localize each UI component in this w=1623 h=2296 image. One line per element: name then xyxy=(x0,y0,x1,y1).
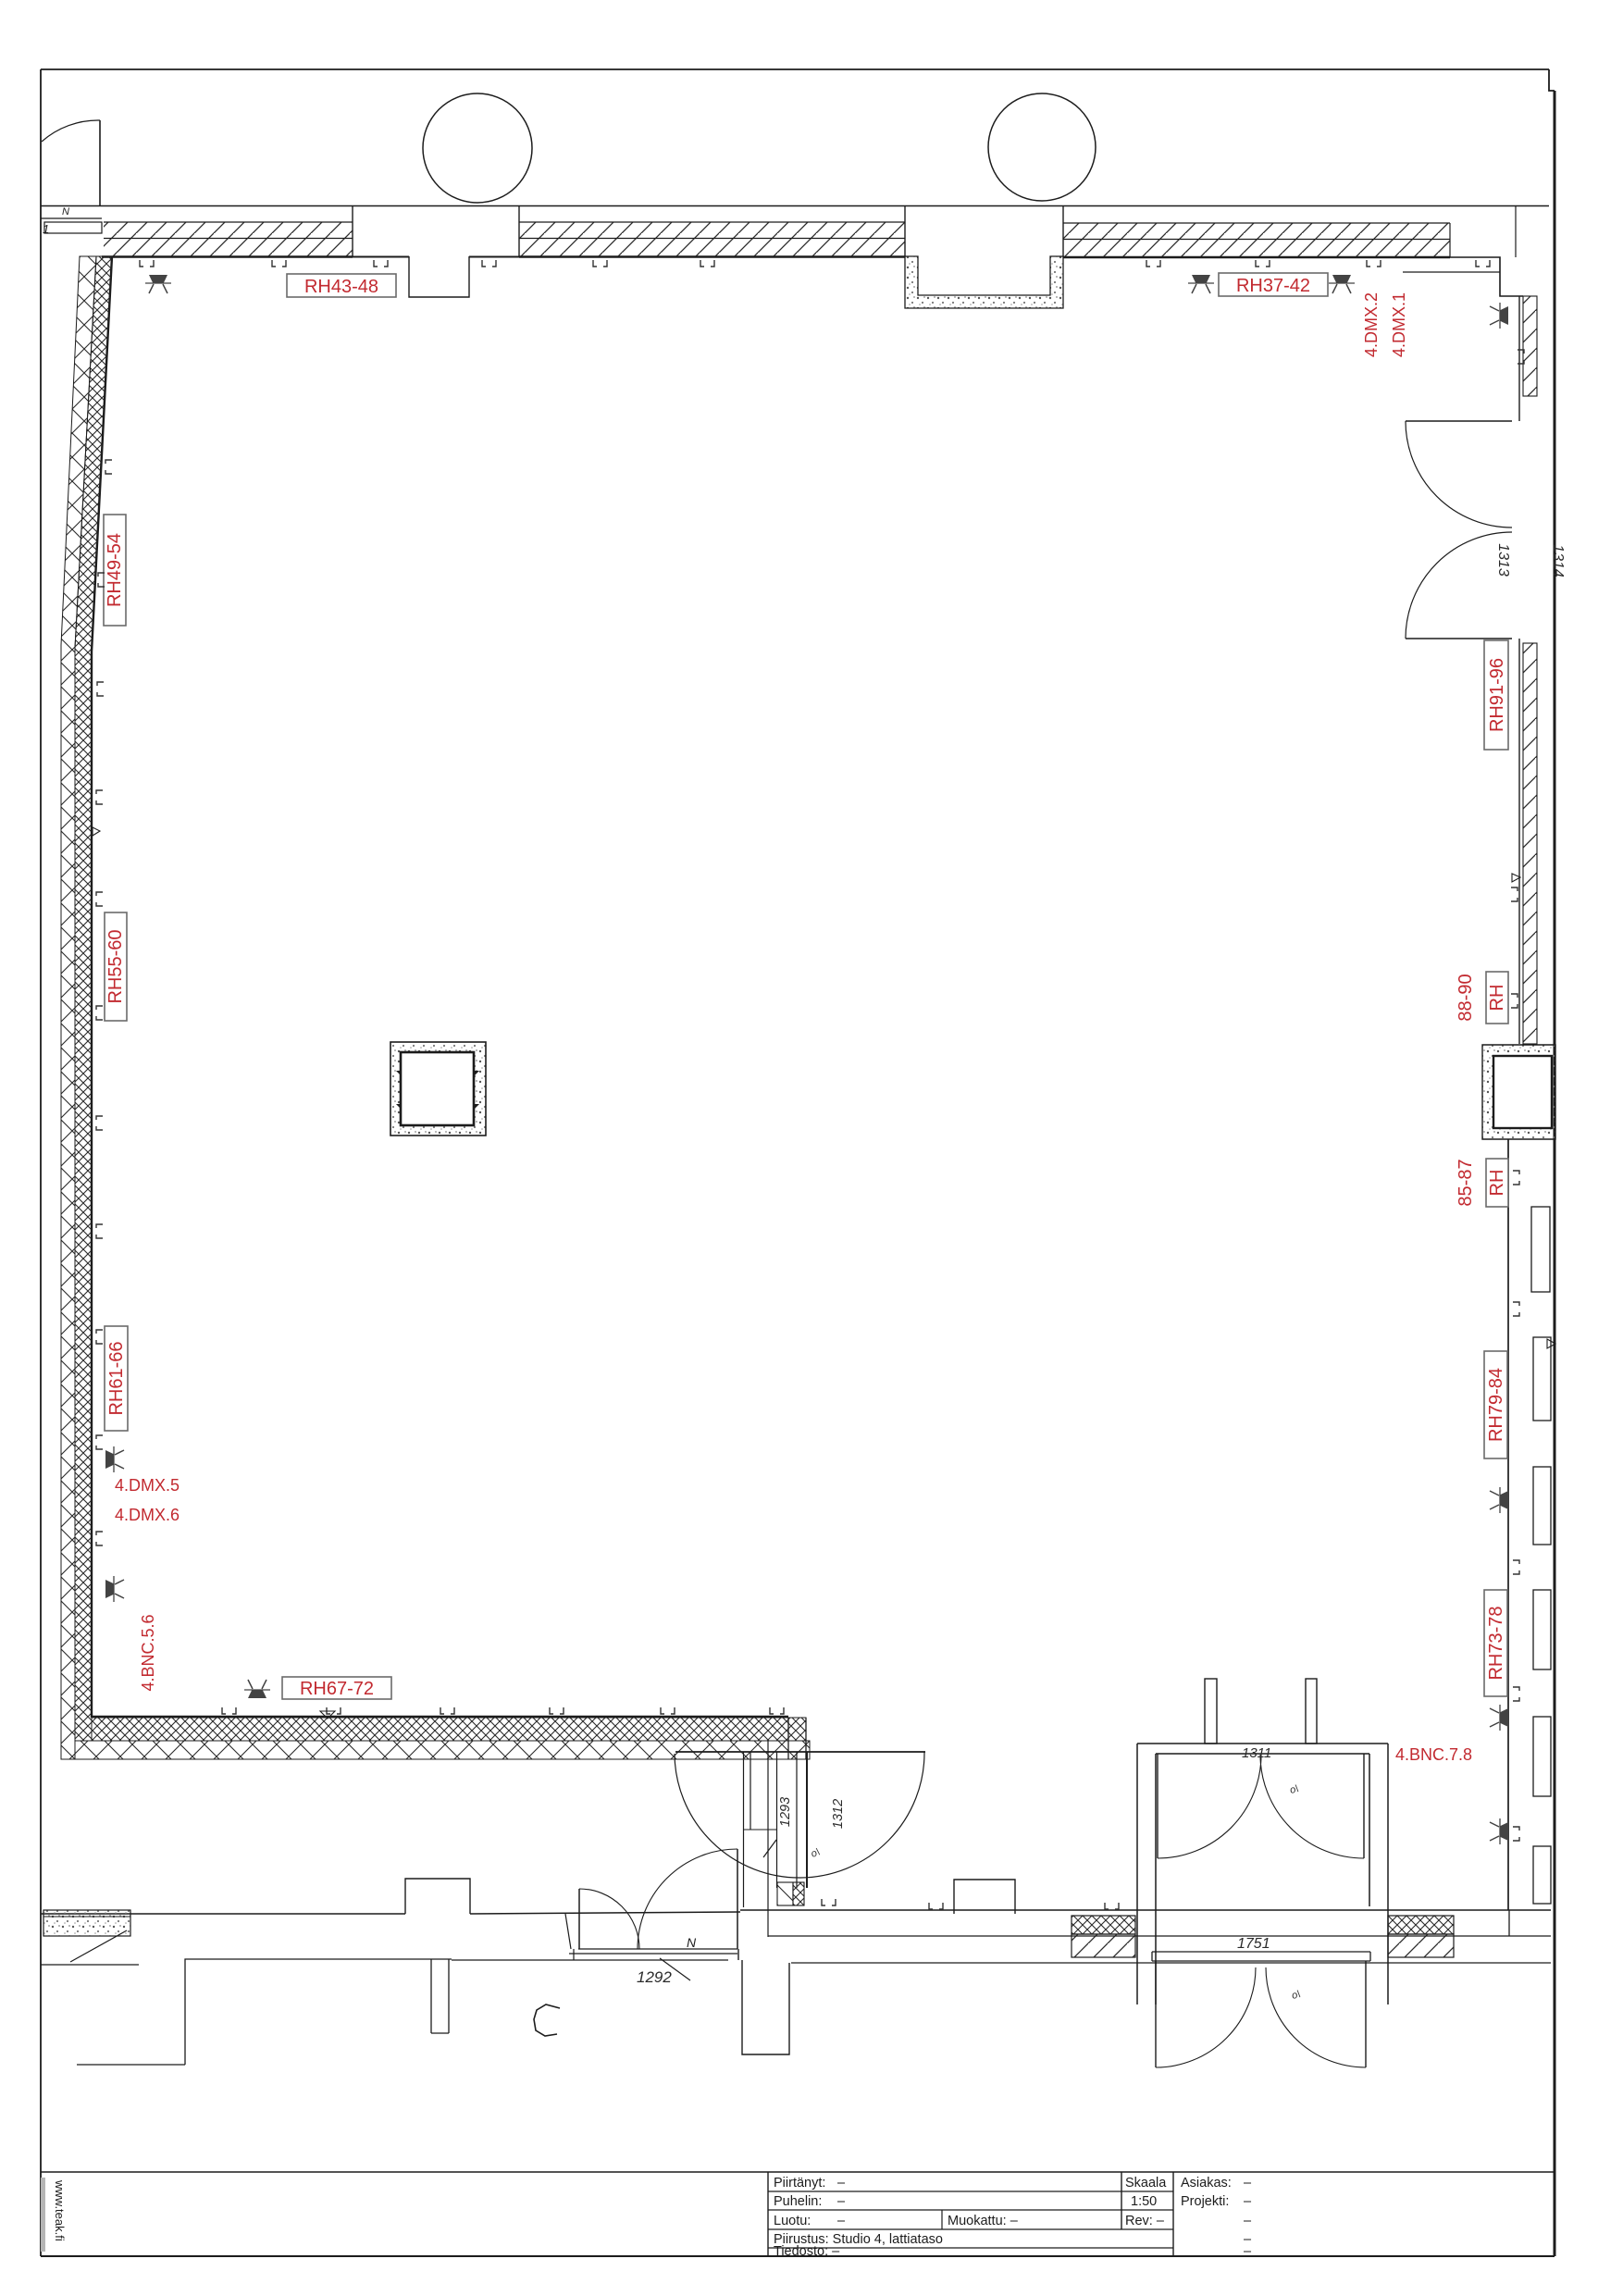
svg-text:RH79-84: RH79-84 xyxy=(1486,1368,1506,1442)
svg-text:1:50: 1:50 xyxy=(1131,2194,1157,2209)
svg-text:4.DMX.5: 4.DMX.5 xyxy=(115,1476,180,1495)
svg-text:4.DMX.2: 4.DMX.2 xyxy=(1362,292,1381,357)
svg-text:–: – xyxy=(837,2194,846,2209)
svg-text:–: – xyxy=(1244,2214,1252,2228)
svg-text:–: – xyxy=(837,2176,846,2191)
svg-text:Tiedosto: –: Tiedosto: – xyxy=(774,2244,840,2259)
svg-text:1: 1 xyxy=(43,222,49,236)
svg-text:RH49-54: RH49-54 xyxy=(105,533,125,607)
svg-text:1313: 1313 xyxy=(1495,543,1511,577)
svg-text:RH91-96: RH91-96 xyxy=(1487,658,1507,732)
svg-text:4.DMX.6: 4.DMX.6 xyxy=(115,1506,180,1524)
svg-text:N: N xyxy=(62,206,69,217)
svg-text:1292: 1292 xyxy=(637,1968,672,1986)
svg-text:Luotu:: Luotu: xyxy=(774,2214,811,2228)
svg-text:1312: 1312 xyxy=(831,1799,846,1829)
svg-text:1293: 1293 xyxy=(778,1797,793,1827)
svg-text:–: – xyxy=(837,2214,846,2228)
svg-text:RH37-42: RH37-42 xyxy=(1236,276,1310,296)
svg-text:Piirtänyt:: Piirtänyt: xyxy=(774,2176,825,2191)
svg-text:Puhelin:: Puhelin: xyxy=(774,2194,822,2209)
svg-text:N: N xyxy=(687,1935,697,1950)
svg-text:–: – xyxy=(1244,2176,1252,2191)
svg-text:88-90: 88-90 xyxy=(1456,974,1476,1021)
svg-text:www.teak.fi: www.teak.fi xyxy=(53,2179,67,2241)
svg-text:Skaala: Skaala xyxy=(1125,2176,1167,2191)
svg-text:85-87: 85-87 xyxy=(1456,1159,1476,1206)
svg-text:1751: 1751 xyxy=(1237,1936,1270,1952)
svg-text:RH55-60: RH55-60 xyxy=(105,929,126,1003)
svg-text:–: – xyxy=(1244,2194,1252,2209)
svg-text:4.BNC.7.8: 4.BNC.7.8 xyxy=(1395,1745,1472,1764)
svg-text:RH43-48: RH43-48 xyxy=(304,277,378,297)
svg-text:Rev: –: Rev: – xyxy=(1125,2214,1165,2228)
svg-text:RH67-72: RH67-72 xyxy=(300,1679,374,1699)
svg-text:–: – xyxy=(1244,2244,1252,2259)
svg-text:1314: 1314 xyxy=(1550,544,1566,577)
svg-text:RH: RH xyxy=(1487,985,1507,1011)
svg-text:Asiakas:: Asiakas: xyxy=(1181,2176,1232,2191)
svg-text:Muokattu: –: Muokattu: – xyxy=(948,2214,1019,2228)
svg-text:RH73-78: RH73-78 xyxy=(1486,1606,1506,1680)
svg-text:Projekti:: Projekti: xyxy=(1181,2194,1229,2209)
svg-text:1311: 1311 xyxy=(1242,1745,1271,1761)
svg-text:4.DMX.1: 4.DMX.1 xyxy=(1390,292,1408,357)
svg-text:RH: RH xyxy=(1487,1170,1507,1197)
svg-text:4.BNC.5.6: 4.BNC.5.6 xyxy=(139,1614,157,1691)
svg-text:RH61-66: RH61-66 xyxy=(106,1341,127,1415)
